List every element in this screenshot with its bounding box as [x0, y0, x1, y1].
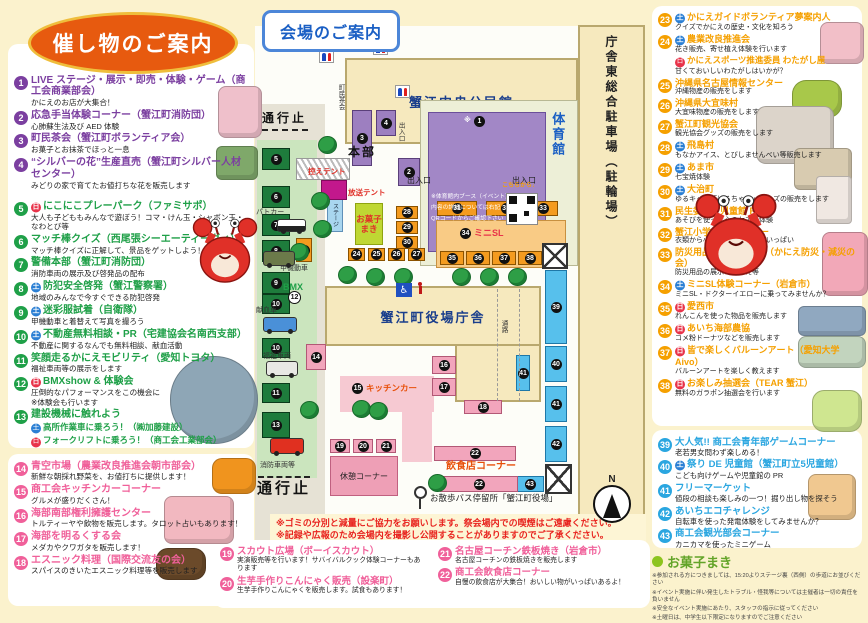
- item-text: 名古屋コーチン鉄板焼き（岩倉市）名古屋コーチンの鉄板焼きを販売します: [455, 546, 645, 565]
- bus2-icon: [266, 361, 298, 376]
- qr-block: [509, 196, 517, 204]
- item-title: 蟹江町観光協会: [675, 119, 857, 130]
- item-number: 17: [14, 532, 28, 546]
- compass-circle: [593, 485, 631, 523]
- wheel-icon: [288, 329, 293, 334]
- item-desc: 沖縄物産の販売をします: [675, 88, 857, 97]
- item-title: 土不動産無料相談・PR（宅建協会名南西支部）: [31, 329, 249, 341]
- map-label: BMX: [283, 283, 303, 293]
- item-desc: 心肺蘇生法及び AED 体験: [31, 122, 249, 131]
- stall-number: 22: [474, 479, 485, 490]
- item-desc: 自転車を使った発電体験をしてみませんか？: [675, 517, 857, 526]
- item-text: “シルバーの花”生産直売（蟹江町シルバー人材センター）みどりの家で育てたお値打ち…: [31, 157, 249, 190]
- male-figure-icon: [398, 88, 402, 96]
- event-item-38: 38日お楽しみ抽選会（TEAR 蟹江）無料のガラポン抽選会を行います: [658, 378, 857, 399]
- event-item-3: 3町民茶会（蟹江町ボランティア会）お菓子とお抹茶でほっと一息: [14, 133, 249, 154]
- map-stall-39: 39: [545, 270, 567, 344]
- map-label: 通行止: [257, 481, 311, 498]
- item-desc: 大宜味物産の販売をします: [675, 109, 857, 118]
- item-desc: 観光協会グッズの販売をします: [675, 130, 857, 139]
- event-item-16: 16海部南部権利擁護センタートルティーヤや飲物を販売します。タロット占いもありま…: [14, 508, 249, 529]
- item-title: 笑顔走るかにえモビリティ（愛知トヨタ）: [31, 353, 249, 365]
- map-label: お散歩バス停留所「蟹江町役場」: [430, 494, 558, 503]
- sunday-badge: 日: [675, 325, 685, 335]
- tree-icon: [338, 266, 357, 284]
- item-text: 土不動産無料相談・PR（宅建協会名南西支部）不動産に関するなんでも無料相談、献血…: [31, 329, 249, 350]
- map-stall-13: 13: [262, 412, 290, 438]
- item-number: 6: [14, 235, 28, 249]
- item-text: 土あま市七宝焼体験: [675, 162, 857, 183]
- item-title: 名古屋コーチン鉄板焼き（岩倉市）: [455, 546, 645, 557]
- map-label: パトカー: [256, 209, 284, 217]
- map-area-label: 庁舎東総合駐車場（駐輪場）: [603, 27, 620, 230]
- stall-number: 18: [478, 402, 489, 413]
- item-number: 41: [658, 484, 672, 498]
- saturday-badge: 土: [675, 163, 685, 173]
- item-title: 日愛西市: [675, 301, 857, 313]
- legend-bullet-icon: [652, 556, 663, 567]
- event-item-12: 12日BMXshow & 体験会圧倒的なパフォーマンスをこの機会に※体験会も行い…: [14, 376, 249, 407]
- crab-mascot: [692, 186, 780, 288]
- compass-needle: [603, 494, 621, 518]
- map-stall-17: 17: [432, 378, 456, 396]
- event-item-21: 21名古屋コーチン鉄板焼き（岩倉市）名古屋コーチンの鉄板焼きを販売します: [438, 546, 645, 565]
- item-sub: 日フォークリフトに乗ろう！（商工会工業部会）: [31, 435, 249, 447]
- stall-number: 11: [271, 388, 282, 399]
- tree-icon: [428, 474, 447, 492]
- item-title: LIVE ステージ・展示・即売・体験・ゲーム（商工会商業部会）: [31, 75, 249, 99]
- saturday-badge: 土: [31, 307, 41, 317]
- sunday-badge: 日: [31, 437, 41, 447]
- stall-number: 33: [538, 203, 549, 214]
- item-desc: かにえのお店が大集合！: [31, 98, 249, 107]
- crab-mascot: [190, 203, 260, 301]
- item-text: 笑顔走るかにえモビリティ（愛知トヨタ）福祉車両等の展示をします: [31, 353, 249, 374]
- item-text: 日お楽しみ抽選会（TEAR 蟹江）無料のガラポン抽選会を行います: [675, 378, 857, 399]
- item-number: 13: [14, 410, 28, 424]
- road-closed-dash: [262, 129, 308, 131]
- event-item-43: 43商工会観光部会コーナーカニカマを使ったミニゲーム: [658, 528, 857, 548]
- female-figure-icon: [328, 53, 332, 61]
- item-text: 沖縄県大宜味村大宜味物産の販売をします: [675, 98, 857, 117]
- legend-title-text: お菓子まき: [667, 552, 732, 571]
- event-item-20: 20生芋手作りこんにゃく販売（設楽町）生芋手作りこんにゃくを販売します。試食もあ…: [220, 576, 427, 595]
- map-label: 消防車両等: [260, 462, 295, 470]
- event-item-42: 42あいちエコチャレンジ自転車を使った発電体験をしてみませんか？: [658, 506, 857, 526]
- item-text: 日BMXshow & 体験会圧倒的なパフォーマンスをこの機会に※体験会も行います: [31, 376, 249, 407]
- kitchen-arm: [402, 412, 432, 462]
- item-sub-title: 高所作業車に乗ろう！（㈱加藤建設）: [43, 422, 188, 432]
- item-desc: スパイスのきいたエスニック料理等を販売します: [31, 566, 249, 575]
- saturday-badge: 土: [31, 424, 41, 434]
- map-label: 町民茶会: [337, 84, 344, 110]
- stall-number: 3: [357, 133, 368, 144]
- map-label: 放送テント: [348, 189, 386, 197]
- event-item-25: 25沖縄県名古屋情報センター沖縄物産の販売をします: [658, 78, 857, 97]
- stall-number: 37: [499, 253, 510, 264]
- item-title: 日皆で楽しくバルーンアート（愛知大学 Aivo）: [675, 345, 857, 368]
- legend-note: ※参加される方につきましては、15:20よりステージ裏（西側）の歩道にお並びくだ…: [652, 573, 862, 588]
- item-number: 15: [14, 485, 28, 499]
- item-text: 海部南部権利擁護センタートルティーヤや飲物を販売します。タロット占いもあります！: [31, 508, 249, 529]
- map-stall-21: 21: [376, 439, 396, 453]
- item-text: 土かにえガイドボランティア夢案内人クイズでかにえの歴史・文化を知ろう: [675, 12, 857, 33]
- item-title: 土かにえガイドボランティア夢案内人: [675, 12, 857, 24]
- item-title: 商工会飲食店コーナー: [455, 567, 645, 578]
- saturday-badge: 土: [675, 461, 685, 471]
- page-title-text: 催し物のご案内: [53, 28, 214, 58]
- map-stall-16: 16: [432, 356, 456, 374]
- stall-number: 10: [271, 343, 282, 354]
- map-stall-26: 26: [388, 248, 405, 261]
- event-item-36: 36日あいち海部農協コメ粉ドーナツなどを販売します: [658, 323, 857, 344]
- item-desc: クイズでかにえの歴史・文化を知ろう: [675, 24, 857, 33]
- item-text: フリーマーケット値段の相談も楽しみの一つ！掘り出し物を探そう: [675, 483, 857, 503]
- item-number: 36: [658, 324, 672, 338]
- item-desc: ※体験会も行います: [31, 398, 249, 407]
- map-label: こちらから↓: [502, 183, 535, 190]
- rest-area: 休憩コーナー: [330, 456, 398, 496]
- item-title: 海部南部権利擁護センター: [31, 508, 249, 520]
- qr-block: [527, 196, 535, 204]
- map-stall-5: 5: [262, 148, 290, 170]
- map-stall-40: 40: [545, 346, 567, 382]
- map-stall-37: 37: [492, 251, 516, 265]
- event-item-23: 23土かにえガイドボランティア夢案内人クイズでかにえの歴史・文化を知ろう: [658, 12, 857, 33]
- parking-strip: 庁舎東総合駐車場（駐輪場）: [578, 25, 645, 546]
- item-desc: 実演販売等を行います！サバイバルクック体験コーナーもあります: [237, 557, 427, 574]
- item-text: 応急手当体験コーナー（蟹江町消防団）心肺蘇生法及び AED 体験: [31, 110, 249, 131]
- item-number: 19: [220, 547, 234, 561]
- road-closed-dash: [258, 476, 310, 478]
- map-stall-11: 11: [262, 383, 290, 403]
- item-sub-title: フォークリフトに乗ろう！（商工会工業部会）: [43, 435, 222, 445]
- item-desc: もなかアイス、とびしませんべい等販売します: [675, 152, 857, 161]
- item-desc: バルーンアートを楽しく教えます: [675, 368, 857, 377]
- legend-notes: ※参加される方につきましては、15:20よりステージ裏（西側）の歩道にお並びくだ…: [652, 573, 862, 623]
- stall-number: 20: [358, 441, 369, 452]
- corridor-dash: [519, 289, 520, 401]
- wheel-icon: [270, 373, 275, 378]
- sunday-badge: 日: [31, 202, 41, 212]
- event-item-41: 41フリーマーケット値段の相談も楽しみの一つ！掘り出し物を探そう: [658, 483, 857, 503]
- saturday-badge: 土: [675, 280, 685, 290]
- event-item-40: 40土祭り DE 児童館（蟹江町立5児童館）こども向けゲームや児童館の PR: [658, 459, 857, 480]
- map-title: 会場のご案内: [262, 10, 400, 52]
- event-item-24: 24土農業改良推進会花き販売、寄せ植え体験を行います日かにえスポーツ推進委員 わ…: [658, 34, 857, 77]
- stall-number: 16: [439, 360, 450, 371]
- item-text: 商工会観光部会コーナーカニカマを使ったミニゲーム: [675, 528, 857, 548]
- item-number: 31: [658, 207, 672, 221]
- map-label: ※体育館内ブース（イベント）: [431, 194, 511, 200]
- male-figure-icon: [322, 53, 326, 61]
- item-text: 町民茶会（蟹江町ボランティア会）お菓子とお抹茶でほっと一息: [31, 133, 249, 154]
- legend-note: ※安全なイベント実施にあたり、スタッフの指示に従ってください: [652, 606, 862, 613]
- event-item-35: 35日愛西市れんこんを使った物品を販売します: [658, 301, 857, 322]
- stall-number: 40: [551, 359, 562, 370]
- item-desc: メダカやクワガタを販売します！: [31, 543, 249, 552]
- event-item-26: 26沖縄県大宜味村大宜味物産の販売をします: [658, 98, 857, 117]
- item-title: あいちエコチャレンジ: [675, 506, 857, 517]
- map-stall-43: 43: [516, 476, 544, 492]
- map-label: 通路: [500, 320, 507, 333]
- event-item-2: 2応急手当体験コーナー（蟹江町消防団）心肺蘇生法及び AED 体験: [14, 110, 249, 131]
- legend-title: お菓子まき: [652, 552, 862, 571]
- map-xbox: [545, 464, 572, 494]
- item-title: 建設機械に触れよう: [31, 409, 249, 421]
- fire-icon: [270, 438, 304, 454]
- item-number: 14: [14, 462, 28, 476]
- yakuba-building: 蟹江町役場庁舎: [325, 286, 541, 346]
- stall-number: 13: [271, 420, 282, 431]
- item-desc: 甲機動車と着替えて写真を撮ろう: [31, 317, 249, 326]
- item-text: 土迷彩服試着（自衛隊）甲機動車と着替えて写真を撮ろう: [31, 305, 249, 326]
- item-sub-title: かにえスポーツ推進委員 わたがし屋: [687, 55, 825, 65]
- qr-block: [509, 214, 517, 222]
- wheel-icon: [281, 229, 286, 234]
- item-text: LIVE ステージ・展示・即売・体験・ゲーム（商工会商業部会）かにえのお店が大集…: [31, 75, 249, 108]
- bus-stop-icon: [414, 486, 426, 508]
- item-title: 海部を明るくする会: [31, 531, 249, 543]
- item-desc: みどりの家で育てたお値打ちな花を販売します: [31, 181, 249, 190]
- item-number: 3: [14, 134, 28, 148]
- map-label: 15キッチンカー: [352, 383, 417, 394]
- stall-number: 17: [439, 382, 450, 393]
- map-stall-22: 22: [434, 446, 516, 461]
- tree-icon: [311, 192, 330, 210]
- item-number: 39: [658, 438, 672, 452]
- stall-number: 19: [335, 441, 346, 452]
- map-stall-22: 22: [440, 476, 518, 492]
- qr-block: [524, 211, 529, 216]
- item-number: 21: [438, 547, 452, 561]
- item-sub-desc: 甘くておいしいわたがしはいかが？: [675, 68, 857, 77]
- item-text: 日愛西市れんこんを使った物品を販売します: [675, 301, 857, 322]
- item-text: 日皆で楽しくバルーンアート（愛知大学 Aivo）バルーンアートを楽しく教えます: [675, 345, 857, 376]
- item-text: 土農業改良推進会花き販売、寄せ植え体験を行います日かにえスポーツ推進委員 わたが…: [675, 34, 857, 77]
- item-text: 青空市場（農業改良推進会朝市部会）新鮮な朝採れ野菜を、お値打ちに提供します！: [31, 461, 249, 482]
- item-desc: 老若男女問わず楽しめる！: [675, 448, 857, 457]
- stall-number: 30: [402, 237, 413, 248]
- map-label: 出入口: [407, 177, 431, 186]
- map-label: 福祉車両: [263, 353, 291, 361]
- item-desc: 福祉車両等の展示をします: [31, 364, 249, 373]
- event-item-14: 14青空市場（農業改良推進会朝市部会）新鮮な朝採れ野菜を、お値打ちに提供します！: [14, 461, 249, 482]
- item-number: 32: [658, 228, 672, 242]
- item-text: 沖縄県名古屋情報センター沖縄物産の販売をします: [675, 78, 857, 97]
- event-item-22: 22商工会飲食店コーナー自慢の飲食店が大集合！おいしい物がいっぱいあるよ！: [438, 567, 645, 586]
- item-title: 土迷彩服試着（自衛隊）: [31, 305, 249, 317]
- event-item-10: 10土不動産無料相談・PR（宅建協会名南西支部）不動産に関するなんでも無料相談、…: [14, 329, 249, 350]
- item-title: 日お楽しみ抽選会（TEAR 蟹江）: [675, 378, 857, 390]
- item-text: 大人気!! 商工会青年部ゲームコーナー老若男女問わず楽しめる！: [675, 437, 857, 457]
- map-label: 通行止: [262, 112, 307, 125]
- item-number: 38: [658, 379, 672, 393]
- person-icon: [417, 282, 422, 294]
- item-number: 33: [658, 248, 672, 262]
- item-desc: コメ粉ドーナツなどを販売します: [675, 335, 857, 344]
- item-number: 20: [220, 577, 234, 591]
- item-title: 土農業改良推進会: [675, 34, 857, 46]
- sunday-badge: 日: [675, 347, 685, 357]
- item-title: “シルバーの花”生産直売（蟹江町シルバー人材センター）: [31, 157, 249, 181]
- item-number: 9: [14, 306, 28, 320]
- legend-note: ※イベント実施に伴い発生したトラブル・怪我等については主催者は一切の責任を負いま…: [652, 590, 862, 605]
- tree-icon: [318, 136, 337, 154]
- item-sub: 土高所作業車に乗ろう！（㈱加藤建設）: [31, 422, 249, 434]
- saturday-badge: 土: [675, 141, 685, 151]
- stall-number: 24: [351, 249, 362, 260]
- item-desc: お菓子とお抹茶でほっと一息: [31, 145, 249, 154]
- stall-number: 35: [447, 253, 458, 264]
- event-item-27: 27蟹江町観光協会観光協会グッズの販売をします: [658, 119, 857, 138]
- item-text: 生芋手作りこんにゃく販売（設楽町）生芋手作りこんにゃくを販売します。試食もありま…: [237, 576, 427, 595]
- map-area-label: お菓子まき: [356, 214, 382, 234]
- item-number: 28: [658, 141, 672, 155]
- map-number-12: 12: [288, 291, 301, 304]
- item-title: 土祭り DE 児童館（蟹江町立5児童館）: [675, 459, 857, 471]
- item-number: 40: [658, 460, 672, 474]
- wheel-icon: [267, 263, 272, 268]
- stall-number: 22: [470, 448, 481, 459]
- item-desc: 圧倒的なパフォーマンスをこの機会に: [31, 388, 249, 397]
- stall-number: 39: [551, 302, 562, 313]
- item-text: 日あいち海部農協コメ粉ドーナツなどを販売します: [675, 323, 857, 344]
- wheel-icon: [289, 373, 294, 378]
- item-number: 2: [14, 111, 28, 125]
- item-number: 18: [14, 556, 28, 570]
- item-number: 22: [438, 568, 452, 582]
- item-desc: 花き販売、寄せ植え体験を行います: [675, 46, 857, 55]
- item-desc: 名古屋コーチンの鉄板焼きを販売します: [455, 557, 645, 565]
- item-text: スカウト広場（ボーイスカウト）実演販売等を行います！サバイバルクック体験コーナー…: [237, 546, 427, 574]
- event-item-13: 13建設機械に触れよう土高所作業車に乗ろう！（㈱加藤建設）日フォークリフトに乗ろ…: [14, 409, 249, 448]
- saturday-badge: 土: [675, 13, 685, 23]
- map-label: 34ミニSL: [460, 228, 504, 239]
- event-item-1: 1LIVE ステージ・展示・即売・体験・ゲーム（商工会商業部会）かにえのお店が大…: [14, 75, 249, 108]
- item-number: 42: [658, 507, 672, 521]
- item-number: 43: [658, 529, 672, 543]
- item-title: 沖縄県名古屋情報センター: [675, 78, 857, 89]
- qr-code-icon: [506, 193, 538, 225]
- item-text: 海部を明るくする会メダカやクワガタを販売します！: [31, 531, 249, 552]
- item-number: 29: [658, 163, 672, 177]
- item-text: 商工会キッチンカーコーナーグルメが盛りだくさん！: [31, 484, 249, 505]
- event-item-9: 9土迷彩服試着（自衛隊）甲機動車と着替えて写真を撮ろう: [14, 305, 249, 326]
- stall-number: 21: [381, 441, 392, 452]
- truck-icon: [263, 251, 295, 266]
- item-desc: カニカマを使ったミニゲーム: [675, 540, 857, 549]
- event-item-18: 18エスニック料理（国際交流友の会）スパイスのきいたエスニック料理等を販売します: [14, 555, 249, 576]
- tree-icon: [480, 268, 499, 286]
- tree-icon: [300, 401, 319, 419]
- item-title: 土あま市: [675, 162, 857, 174]
- saturday-badge: 土: [675, 186, 685, 196]
- map-label: ※: [464, 117, 471, 125]
- stall-number: 6: [271, 192, 282, 203]
- map-stall-19: 19: [330, 439, 350, 453]
- item-text: 商工会飲食店コーナー自慢の飲食店が大集合！おいしい物がいっぱいあるよ！: [455, 567, 645, 586]
- item-title: 沖縄県大宜味村: [675, 98, 857, 109]
- stall-number: 27: [411, 249, 422, 260]
- tree-icon: [508, 268, 527, 286]
- map-stall-24: 24: [348, 248, 365, 261]
- item-desc: グルメが盛りだくさん！: [31, 496, 249, 505]
- item-title: 商工会観光部会コーナー: [675, 528, 857, 539]
- map-stall-42: 42: [545, 426, 567, 462]
- item-number: 25: [658, 79, 672, 93]
- stall-number: 34: [460, 228, 471, 239]
- item-desc: トルティーヤや飲物を販売します。タロット占いもあります！: [31, 519, 249, 528]
- map-area-label: 休憩コーナー: [340, 471, 388, 482]
- stall-number: 9: [271, 278, 282, 289]
- item-number: 24: [658, 35, 672, 49]
- item-desc: 不動産に関するなんでも無料相談、献血活動: [31, 341, 249, 350]
- stall-number: 38: [525, 253, 536, 264]
- stall-number: 14: [311, 352, 322, 363]
- item-number: 30: [658, 185, 672, 199]
- map-label: 飲食店コーナー: [446, 461, 516, 472]
- map-label: 体育館: [550, 112, 564, 157]
- item-number: 8: [14, 282, 28, 296]
- item-number: 35: [658, 302, 672, 316]
- saturday-badge: 土: [675, 35, 685, 45]
- event-item-29: 29土あま市七宝焼体験: [658, 162, 857, 183]
- wheelchair-icon: ♿: [396, 283, 412, 297]
- saturday-badge: 土: [31, 330, 41, 340]
- map-xbox: [542, 243, 568, 269]
- map-label: 甲機動車: [280, 265, 308, 273]
- item-number: 37: [658, 346, 672, 360]
- bus-stop-pole: [419, 499, 421, 509]
- bus-stop-sign: [414, 486, 427, 499]
- event-item-4: 4“シルバーの花”生産直売（蟹江町シルバー人材センター）みどりの家で育てたお値打…: [14, 157, 249, 190]
- map-label: 献血車: [256, 307, 277, 315]
- map-stall-41: 41: [545, 386, 567, 422]
- map-stall-6: 6: [262, 186, 290, 208]
- map-label: 出入口: [397, 122, 404, 142]
- event-item-11: 11笑顔走るかにえモビリティ（愛知トヨタ）福祉車両等の展示をします: [14, 353, 249, 374]
- stall-number: 28: [402, 207, 413, 218]
- tree-icon: [369, 402, 388, 420]
- item-number: 12: [14, 377, 28, 391]
- map-stall-20: 20: [353, 439, 373, 453]
- item-number: 16: [14, 509, 28, 523]
- item-title: 日あいち海部農協: [675, 323, 857, 335]
- map-stall-18: 18: [464, 400, 502, 414]
- item-number: 27: [658, 120, 672, 134]
- stall-number: 43: [525, 479, 536, 490]
- item-title: フリーマーケット: [675, 483, 857, 494]
- stall-number: 26: [391, 249, 402, 260]
- female-figure-icon: [404, 88, 408, 96]
- stall-number: 5: [271, 154, 282, 165]
- item-number: 23: [658, 13, 672, 27]
- item-number: 26: [658, 99, 672, 113]
- event-list-39-43: 39大人気!! 商工会青年部ゲームコーナー老若男女問わず楽しめる！40土祭り D…: [652, 430, 862, 548]
- item-title: 生芋手作りこんにゃく販売（設楽町）: [237, 576, 427, 587]
- item-desc: れんこんを使った物品を販売します: [675, 313, 857, 322]
- stall-number: 29: [402, 222, 413, 233]
- item-desc: ミニSL・ドクターイエローに乗ってみませんか？: [675, 291, 857, 300]
- okashimaki-legend: お菓子まき ※参加される方につきましては、15:20よりステージ裏（西側）の歩道…: [652, 552, 862, 623]
- legend-note: ※土曜日は、中学生以下限定になりますのでご注意ください: [652, 615, 862, 622]
- item-number: 5: [14, 202, 28, 216]
- okashimaki-area: お菓子まき: [355, 203, 383, 245]
- event-item-37: 37日皆で楽しくバルーンアート（愛知大学 Aivo）バルーンアートを楽しく教えま…: [658, 345, 857, 376]
- map-area-label: ステージ: [331, 203, 340, 227]
- wheel-icon: [274, 451, 279, 456]
